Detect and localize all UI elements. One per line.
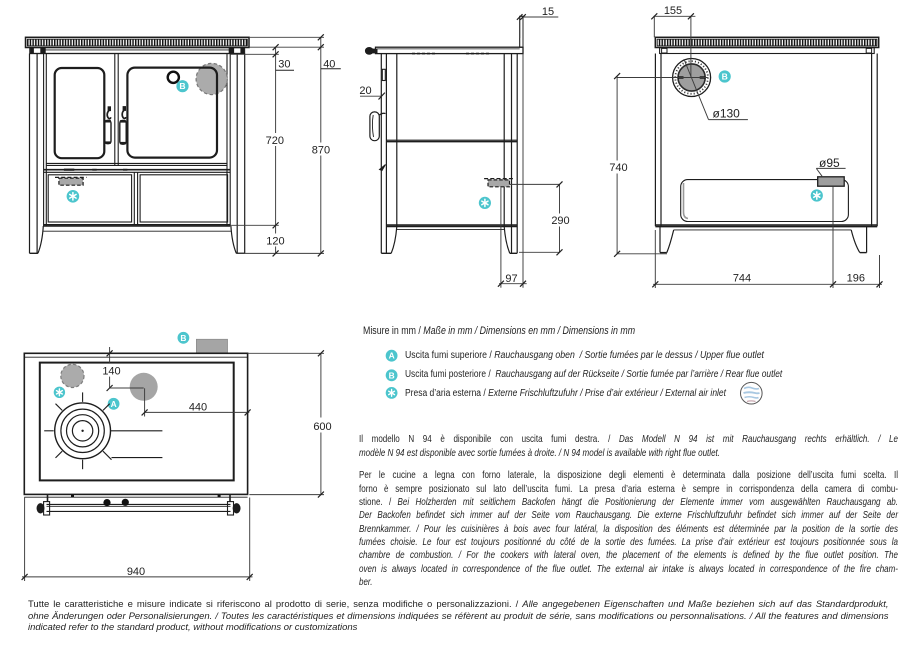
svg-text:A: A xyxy=(111,399,117,409)
svg-text:B: B xyxy=(180,333,186,343)
svg-text:440: 440 xyxy=(189,401,207,413)
svg-text:196: 196 xyxy=(847,273,865,285)
svg-text:B: B xyxy=(722,72,728,82)
svg-text:97: 97 xyxy=(505,273,517,285)
svg-text:940: 940 xyxy=(127,566,145,578)
svg-text:120: 120 xyxy=(266,236,284,248)
svg-text:600: 600 xyxy=(313,421,331,433)
svg-text:870: 870 xyxy=(312,144,330,156)
svg-text:720: 720 xyxy=(266,135,284,147)
svg-text:B: B xyxy=(389,370,395,380)
svg-text:B: B xyxy=(179,81,185,91)
svg-text:A: A xyxy=(389,351,395,361)
svg-text:155: 155 xyxy=(664,5,682,17)
svg-text:30: 30 xyxy=(278,59,290,71)
svg-text:ø95: ø95 xyxy=(819,156,840,170)
svg-text:740: 740 xyxy=(609,162,627,174)
svg-text:744: 744 xyxy=(733,273,751,285)
svg-text:15: 15 xyxy=(542,6,554,18)
svg-text:ø130: ø130 xyxy=(713,107,741,121)
svg-text:20: 20 xyxy=(359,85,371,97)
svg-text:290: 290 xyxy=(551,215,569,227)
svg-text:140: 140 xyxy=(102,365,120,377)
